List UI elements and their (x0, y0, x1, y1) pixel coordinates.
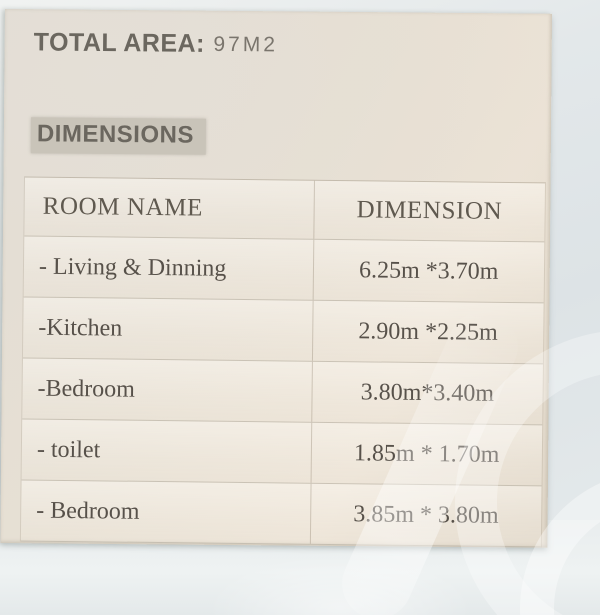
table-row: - toilet 1.85m * 1.70m (22, 419, 543, 486)
room-name-cell: -Kitchen (23, 297, 312, 360)
total-area-label: TOTAL AREA: (34, 28, 206, 59)
table-row: -Kitchen 2.90m *2.25m (23, 297, 544, 364)
column-header-room-name: ROOM NAME (24, 178, 313, 239)
document-page: TOTAL AREA: 97M2 DIMENSIONS ROOM NAME DI… (0, 9, 552, 548)
column-header-dimension: DIMENSION (313, 181, 545, 242)
dimension-cell: 3.85m * 3.80m (309, 484, 541, 547)
total-area-heading: TOTAL AREA: 97M2 (34, 28, 278, 59)
dimensions-section-title: DIMENSIONS (31, 117, 206, 155)
table-row: -Bedroom 3.80m*3.40m (22, 358, 543, 425)
room-name-cell: - Bedroom (21, 480, 310, 543)
dimension-cell: 2.90m *2.25m (312, 301, 544, 364)
total-area-value: 97M2 (213, 33, 278, 58)
table-header-row: ROOM NAME DIMENSION (24, 178, 545, 243)
room-name-cell: - toilet (22, 419, 311, 482)
table-row: - Living & Dinning 6.25m *3.70m (24, 236, 545, 303)
table-row: - Bedroom 3.85m * 3.80m (21, 480, 542, 547)
photo-of-document: TOTAL AREA: 97M2 DIMENSIONS ROOM NAME DI… (0, 0, 600, 615)
dimension-cell: 6.25m *3.70m (312, 240, 544, 303)
dimensions-table: ROOM NAME DIMENSION - Living & Dinning 6… (20, 176, 546, 547)
dimension-cell: 1.85m * 1.70m (310, 423, 542, 486)
room-name-cell: -Bedroom (22, 358, 311, 421)
room-name-cell: - Living & Dinning (24, 236, 313, 299)
dimension-cell: 3.80m*3.40m (311, 362, 543, 425)
